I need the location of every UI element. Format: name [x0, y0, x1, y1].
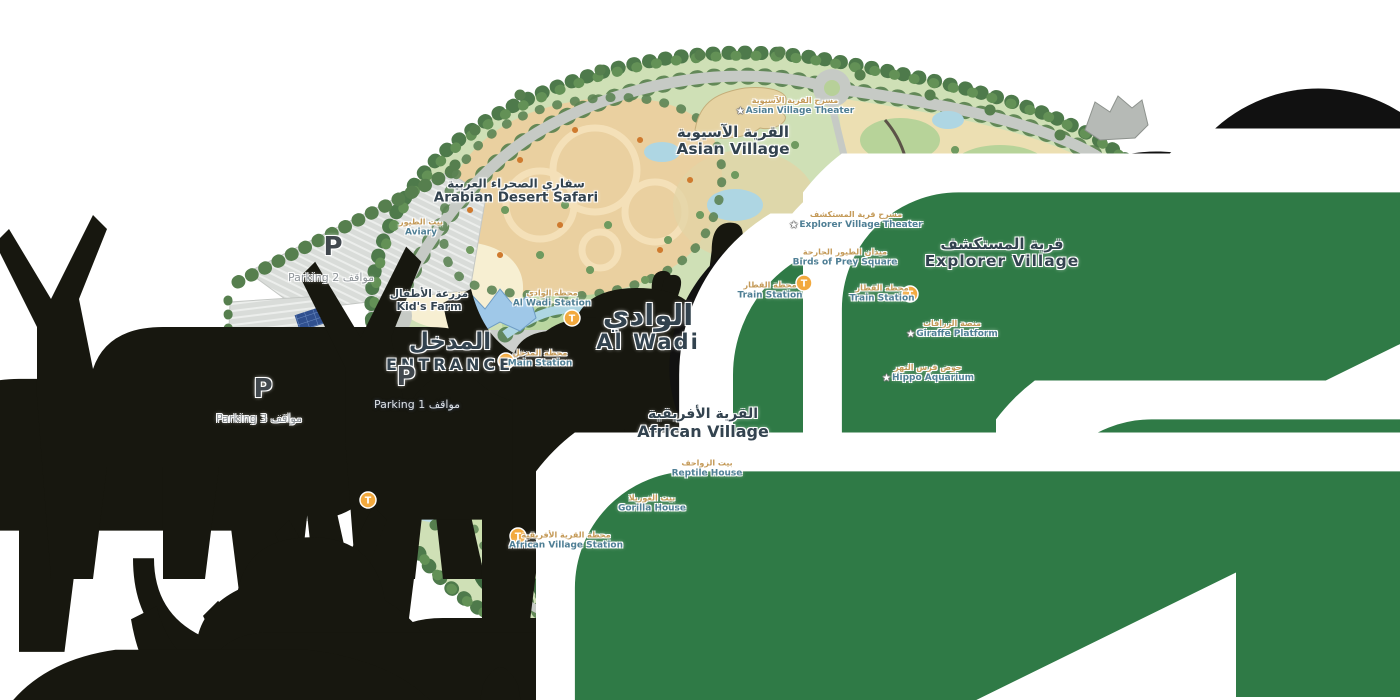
map-markers: TTTTTT — [0, 0, 1400, 700]
train-station-icon: T — [360, 492, 376, 508]
train-station-icon: T — [510, 528, 526, 544]
train-letter: T — [907, 289, 914, 300]
train-station-icon: T — [564, 310, 580, 326]
zoo-park-map: N E S W TTTTTT سفاري الصحراء العربيةArab… — [0, 0, 1400, 700]
train-letter: T — [569, 313, 576, 324]
train-station-icon: T — [902, 286, 918, 302]
train-letter: T — [515, 531, 522, 542]
train-letter: T — [503, 356, 510, 367]
train-station-icon: T — [498, 353, 514, 369]
train-letter: T — [365, 495, 372, 506]
train-letter: T — [801, 278, 808, 289]
train-station-icon: T — [796, 275, 812, 291]
direction-sign-icon — [536, 433, 1400, 700]
